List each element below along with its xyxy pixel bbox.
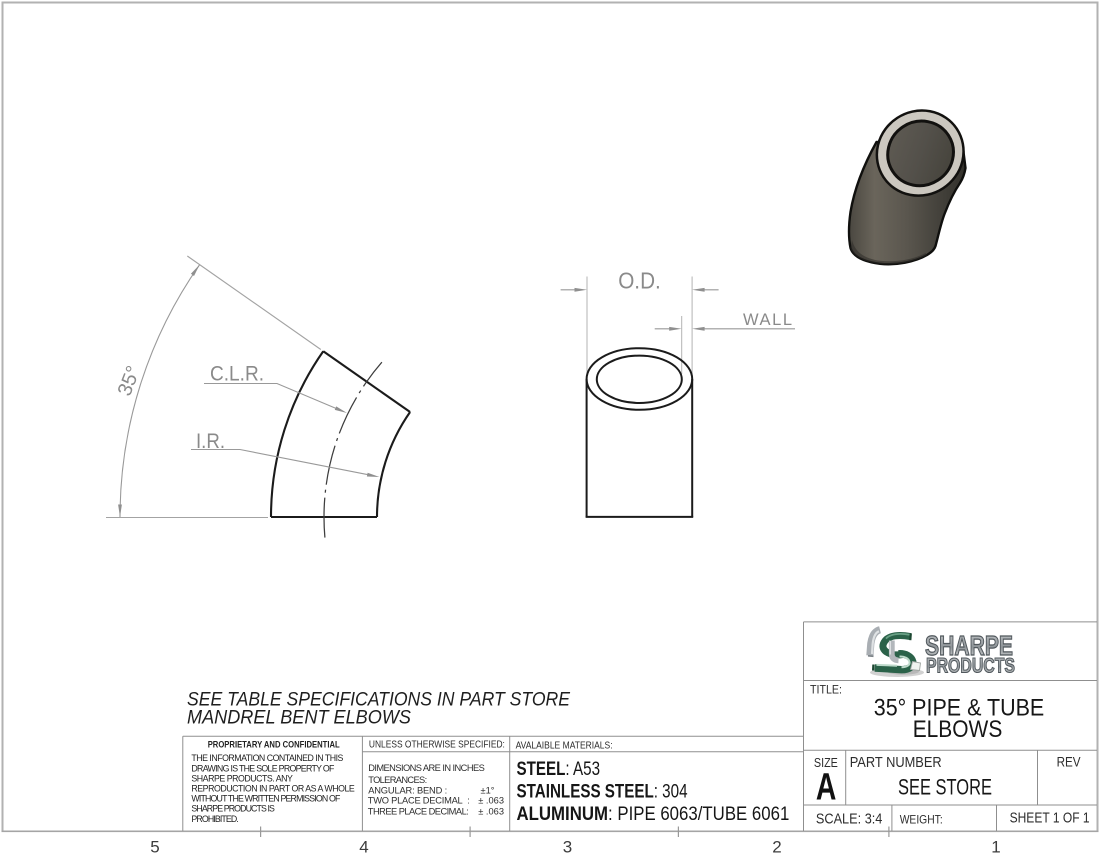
svg-text:TOLERANCES:: TOLERANCES: — [368, 775, 427, 785]
svg-text:WALL: WALL — [743, 311, 792, 329]
svg-text:SHARPE PRODUCTS IS: SHARPE PRODUCTS IS — [191, 804, 275, 814]
svg-text:C.L.R.: C.L.R. — [210, 363, 264, 386]
svg-text:THE INFORMATION CONTAINED IN T: THE INFORMATION CONTAINED IN THIS — [191, 753, 343, 763]
svg-text:STAINLESS STEEL: 304: STAINLESS STEEL: 304 — [517, 780, 688, 802]
svg-text:WITHOUT THE WRITTEN PERMISSION: WITHOUT THE WRITTEN PERMISSION OF — [191, 794, 341, 804]
svg-text:PART NUMBER: PART NUMBER — [850, 755, 942, 771]
svg-text:ALUMINUM: PIPE 6063/TUBE 6061: ALUMINUM: PIPE 6063/TUBE 6061 — [517, 803, 790, 824]
svg-text:MANDREL BENT ELBOWS: MANDREL BENT ELBOWS — [187, 707, 411, 729]
svg-text:±1°: ±1° — [481, 785, 495, 795]
svg-text:SHEET 1 OF 1: SHEET 1 OF 1 — [1010, 810, 1090, 827]
svg-text:PROPRIETARY AND CONFIDENTIAL: PROPRIETARY AND CONFIDENTIAL — [208, 739, 340, 749]
svg-text:O.D.: O.D. — [618, 268, 661, 294]
svg-text:TWO PLACE DECIMAL :: TWO PLACE DECIMAL : — [368, 796, 470, 806]
svg-text:AVALAIBLE MATERIALS:: AVALAIBLE MATERIALS: — [516, 741, 613, 752]
svg-text:2: 2 — [772, 838, 781, 857]
svg-text:SHARPE PRODUCTS. ANY: SHARPE PRODUCTS. ANY — [191, 773, 293, 783]
svg-text:REV: REV — [1057, 755, 1081, 770]
svg-text:DRAWING IS THE SOLE PROPERTY O: DRAWING IS THE SOLE PROPERTY OF — [191, 763, 335, 773]
svg-text:WEIGHT:: WEIGHT: — [900, 813, 943, 827]
svg-text:A: A — [816, 766, 837, 808]
svg-text:SEE STORE: SEE STORE — [898, 775, 992, 800]
svg-text:THREE PLACE DECIMAL:: THREE PLACE DECIMAL: — [368, 807, 469, 817]
svg-text:3: 3 — [563, 838, 572, 857]
svg-text:SCALE: 3:4: SCALE: 3:4 — [816, 811, 883, 828]
svg-text:TITLE:: TITLE: — [810, 685, 842, 697]
svg-text:± .063: ± .063 — [478, 796, 504, 806]
svg-text:1: 1 — [991, 838, 1000, 857]
svg-text:STEEL: A53: STEEL: A53 — [517, 757, 601, 779]
svg-text:ANGULAR: BEND :: ANGULAR: BEND : — [368, 785, 447, 795]
svg-text:± .063: ± .063 — [478, 807, 504, 817]
svg-text:UNLESS OTHERWISE SPECIFIED:: UNLESS OTHERWISE SPECIFIED: — [369, 739, 505, 751]
svg-text:ELBOWS: ELBOWS — [913, 716, 1003, 743]
svg-text:REPRODUCTION IN PART OR AS A W: REPRODUCTION IN PART OR AS A WHOLE — [191, 784, 355, 794]
svg-text:5: 5 — [150, 838, 159, 857]
svg-text:4: 4 — [359, 838, 368, 857]
svg-text:PROHIBITED.: PROHIBITED. — [191, 814, 238, 824]
svg-text:PRODUCTS: PRODUCTS — [926, 654, 1015, 678]
svg-text:DIMENSIONS ARE IN INCHES: DIMENSIONS ARE IN INCHES — [368, 763, 485, 773]
